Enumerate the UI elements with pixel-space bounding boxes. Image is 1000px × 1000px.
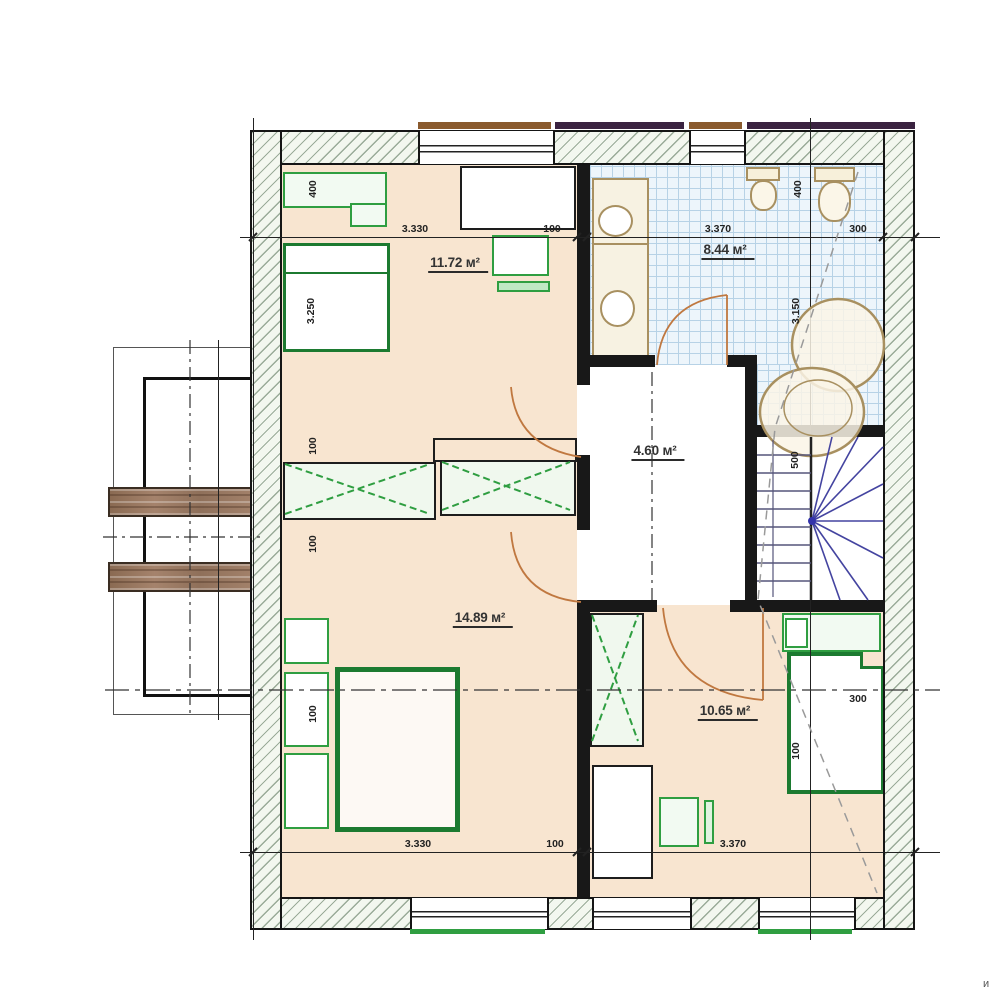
dim-top-1: 3.330 bbox=[402, 223, 428, 235]
dim-bottom-1: 3.330 bbox=[405, 838, 431, 850]
door-arc-bedroom2 bbox=[511, 532, 581, 602]
floor-plan: 11.72 м² 8.44 м² 4.60 м² 14.89 м² 10.65 … bbox=[0, 0, 1000, 1000]
room-area-label-bedroom1: 11.72 м² bbox=[428, 255, 488, 273]
dim-left-3: 100 bbox=[307, 423, 319, 469]
watermark: и bbox=[983, 978, 989, 990]
roof-slope-line bbox=[758, 172, 877, 893]
dim-bottom-3: 3.370 bbox=[720, 838, 746, 850]
plan-drawing-overlay bbox=[0, 0, 1000, 1000]
room-area-label-bedroom2: 14.89 м² bbox=[453, 610, 513, 628]
room-area-label-bedroom3: 10.65 м² bbox=[698, 703, 758, 721]
room-area-label-hall: 4.60 м² bbox=[631, 443, 684, 461]
dim-top-4: 300 bbox=[849, 223, 867, 235]
dim-left-5: 100 bbox=[307, 691, 319, 737]
door-arcs bbox=[511, 295, 763, 700]
door-arc-bedroom1 bbox=[511, 387, 581, 457]
dim-right-1: 400 bbox=[792, 166, 804, 212]
bathtub bbox=[760, 299, 884, 456]
dim-left-1: 400 bbox=[307, 166, 319, 212]
dim-top-2: 100 bbox=[543, 223, 561, 235]
dim-right-5: 300 bbox=[849, 693, 867, 705]
door-arc-bedroom3 bbox=[663, 608, 763, 700]
dim-bottom-2: 100 bbox=[546, 838, 564, 850]
dim-left-4: 100 bbox=[307, 521, 319, 567]
staircase bbox=[757, 437, 883, 600]
dim-right-4: 100 bbox=[790, 728, 802, 774]
room-area-label-bathroom: 8.44 м² bbox=[701, 242, 754, 260]
dim-right-3: 500 bbox=[789, 437, 801, 483]
dim-top-3: 3.370 bbox=[705, 223, 731, 235]
door-arc-bathroom bbox=[657, 295, 727, 365]
dim-left-2: 3.250 bbox=[305, 288, 317, 334]
dim-right-2: 3.150 bbox=[790, 288, 802, 334]
stair-pivot bbox=[808, 517, 816, 525]
wardrobe-x-marks bbox=[285, 462, 638, 741]
